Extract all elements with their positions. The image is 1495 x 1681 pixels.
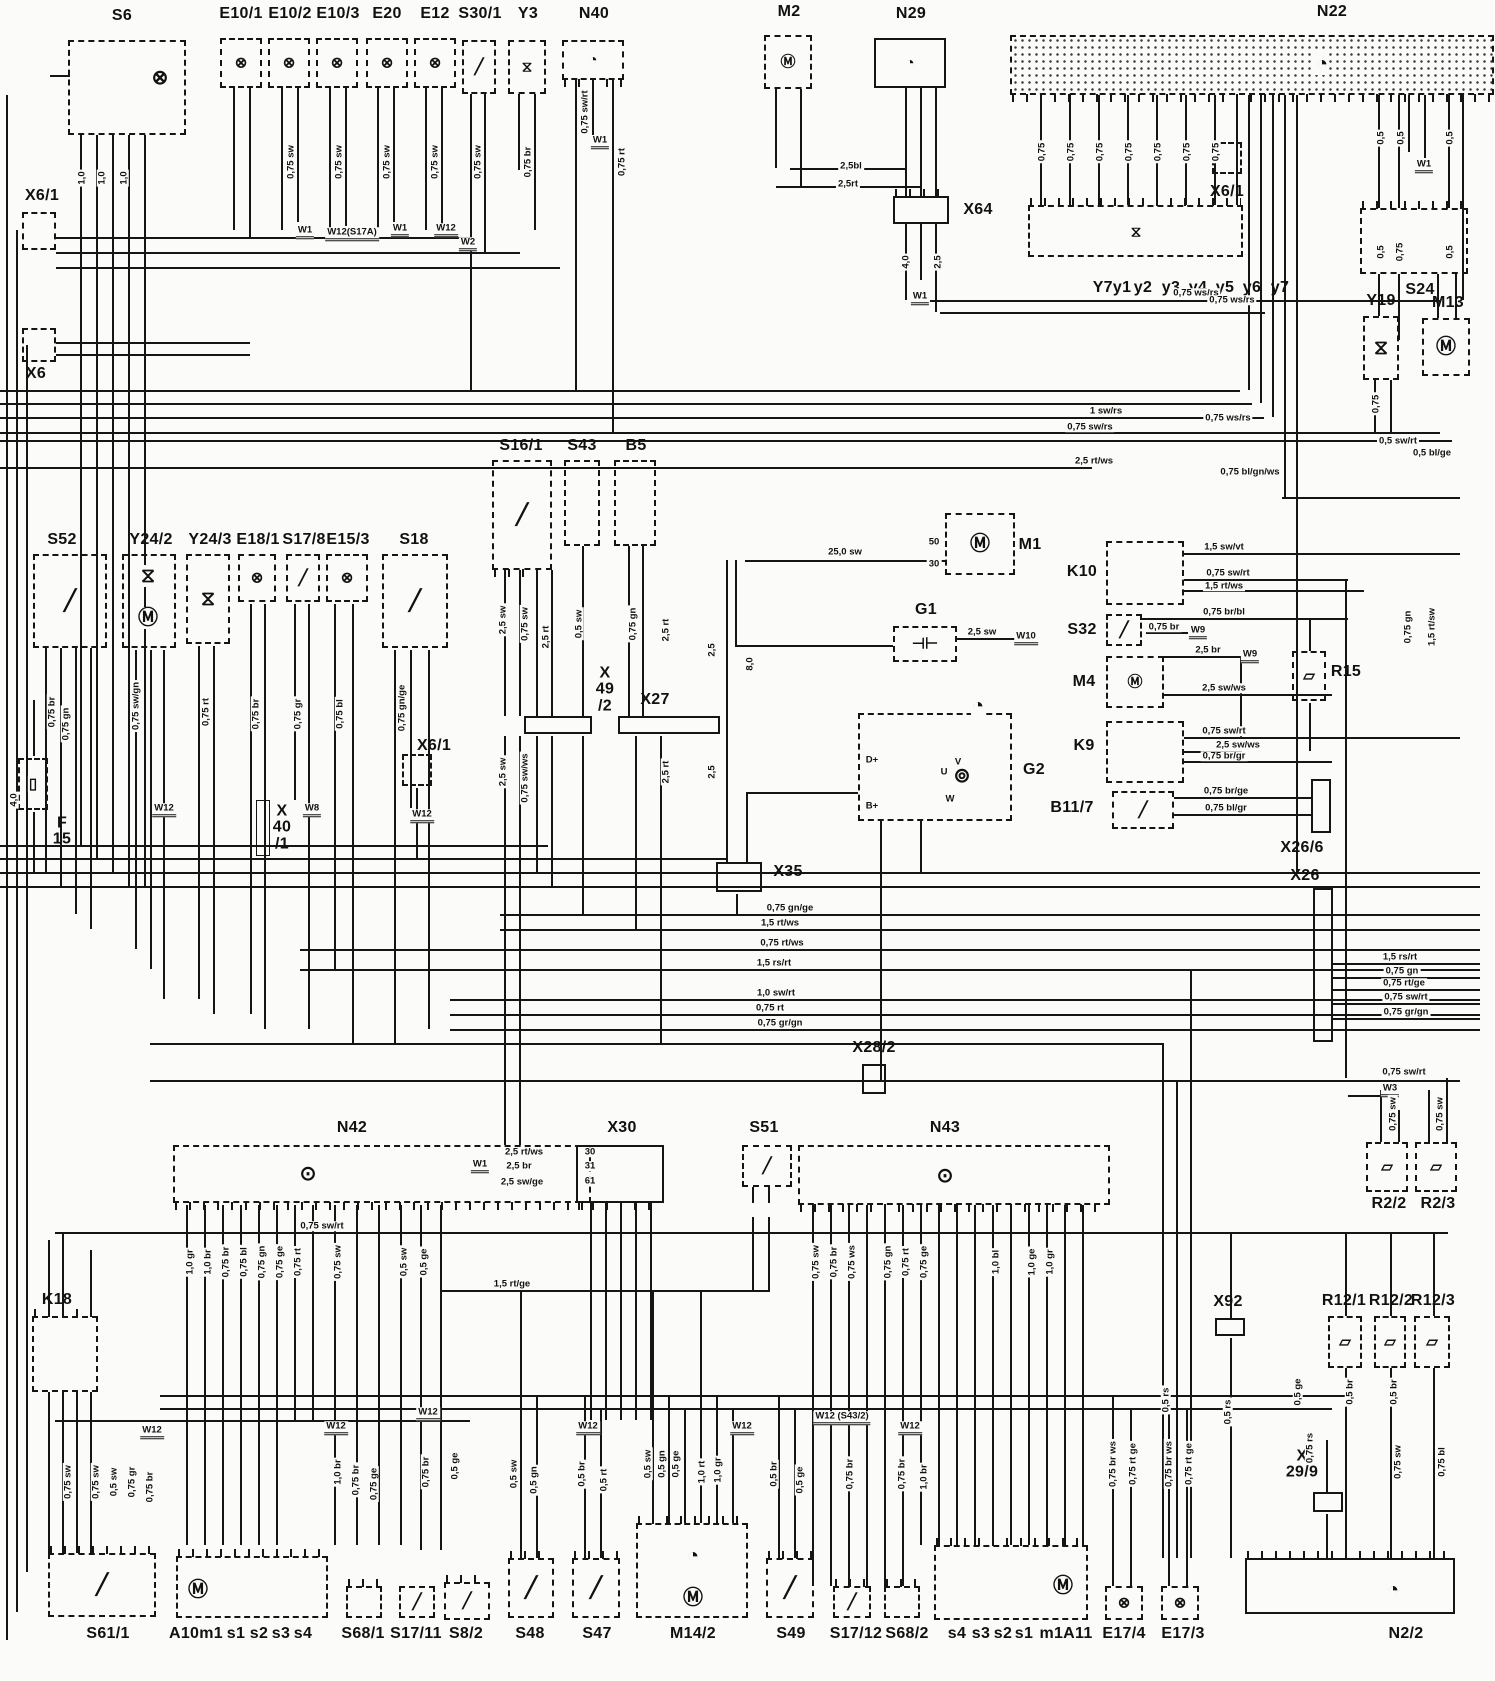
wire-vertical bbox=[520, 1290, 522, 1558]
component-e17-4-label: E17/4 bbox=[1102, 1626, 1145, 1642]
wire-label: 0,75 ge bbox=[919, 1244, 929, 1280]
wire-label: 2,5 sw bbox=[498, 604, 508, 637]
wire-horizontal bbox=[0, 432, 1440, 434]
ground-label: W12 bbox=[434, 223, 458, 237]
component-x28-2 bbox=[862, 1064, 886, 1094]
transistor-icon: ⊙ bbox=[299, 1163, 318, 1185]
wire-horizontal bbox=[56, 342, 250, 344]
wire-vertical bbox=[1296, 95, 1298, 872]
component-x29-9 bbox=[1313, 1492, 1343, 1512]
wire-label: 0,75 rs bbox=[1305, 1431, 1315, 1465]
wire-vertical bbox=[441, 88, 443, 226]
wire-vertical bbox=[1378, 95, 1380, 208]
sub-label: s2 bbox=[250, 1626, 268, 1642]
wire-label: 0,75 bl bbox=[335, 697, 345, 731]
sub-label: Y7y1 bbox=[1093, 280, 1132, 296]
pump-icon: ◔ bbox=[904, 55, 915, 72]
component-x64 bbox=[893, 196, 949, 224]
wire-label: 0,75 bl/gr bbox=[1203, 803, 1249, 813]
wire-vertical bbox=[233, 88, 235, 230]
wire-label: 0,75 bbox=[1182, 141, 1192, 164]
component-y24-2-label: Y24/2 bbox=[129, 532, 172, 548]
sub-label: s2 bbox=[994, 1626, 1012, 1642]
wire-vertical bbox=[294, 1205, 296, 1420]
wire-label: 0,75 br bbox=[897, 1457, 907, 1492]
component-x6-1-l bbox=[22, 212, 56, 250]
lamp-icon: ⊗ bbox=[1173, 1595, 1188, 1612]
wire-label: 0,75 bbox=[1211, 141, 1221, 164]
lamp-icon: ⊗ bbox=[340, 570, 355, 587]
wire-label: 1,0 bl bbox=[991, 1248, 1001, 1276]
wire-vertical bbox=[700, 1290, 702, 1523]
ground-label: W12 (S43/2) bbox=[813, 1411, 870, 1425]
wire-label: 0,75 sw/rs bbox=[1065, 422, 1114, 432]
wire-label: 2,5bl bbox=[838, 161, 864, 171]
component-s17-11-label: S17/11 bbox=[390, 1626, 442, 1642]
wire-vertical bbox=[534, 94, 536, 230]
wire-vertical bbox=[736, 894, 738, 914]
wire-horizontal bbox=[300, 969, 1480, 971]
wire-label: 31 bbox=[583, 1161, 598, 1171]
switch-icon: ╱ bbox=[411, 1594, 422, 1611]
wire-label: 0,75 rt bbox=[201, 696, 211, 728]
wire-vertical bbox=[752, 1187, 754, 1203]
wire-label: 2,5 bbox=[707, 763, 717, 780]
component-x6-label: X6 bbox=[26, 366, 46, 382]
wire-label: 0,5 bbox=[1396, 129, 1406, 146]
wire-label: 1,0 bbox=[119, 169, 129, 186]
ground-label: W1 bbox=[1415, 159, 1433, 173]
wire-label: 0,75 gr bbox=[293, 697, 303, 732]
wire-horizontal bbox=[1333, 1018, 1480, 1020]
ground-label: W1 bbox=[911, 291, 929, 305]
wire-label: W bbox=[944, 794, 957, 804]
wire-label: 2,5 rt bbox=[541, 624, 551, 651]
lamp-icon: ⊗ bbox=[234, 55, 249, 72]
component-k9 bbox=[1106, 721, 1184, 783]
wire-vertical bbox=[1398, 1110, 1400, 1142]
wire-horizontal bbox=[1146, 632, 1188, 634]
wire-vertical bbox=[752, 1217, 754, 1290]
wire-vertical bbox=[905, 88, 907, 196]
wire-label: 2,5 sw/ge bbox=[499, 1177, 545, 1187]
wire-vertical bbox=[163, 650, 165, 999]
wire-label: U bbox=[939, 767, 950, 777]
wire-label: 0,75 br bbox=[221, 1245, 231, 1280]
component-r12-2-label: R12/2 bbox=[1369, 1293, 1413, 1309]
sub-label: m1A11 bbox=[1039, 1626, 1092, 1642]
ground-label: W12 bbox=[152, 803, 176, 817]
wire-vertical bbox=[1186, 1408, 1188, 1586]
wire-label: 0,5 bbox=[1376, 129, 1386, 146]
component-e10-3-label: E10/3 bbox=[316, 6, 359, 22]
wire-vertical bbox=[96, 135, 98, 858]
ground-label: W1 bbox=[391, 223, 409, 237]
wire-horizontal bbox=[745, 560, 945, 562]
wire-label: 0,5 ge bbox=[795, 1465, 805, 1496]
wire-label: 0,75 gn bbox=[883, 1244, 893, 1281]
wire-label: 0,75 rt ge bbox=[1128, 1441, 1138, 1487]
wire-horizontal bbox=[1184, 761, 1332, 763]
wire-label: 0,75 ws/rs bbox=[1207, 295, 1256, 305]
ground-label: W1 bbox=[296, 225, 314, 239]
wire-label: 1,5 rt/sw bbox=[1427, 606, 1437, 648]
wire-label: 0,5 bbox=[1376, 243, 1386, 260]
wire-label: 0,5 br bbox=[1389, 1377, 1399, 1406]
wire-vertical bbox=[684, 1408, 686, 1523]
wire-label: 0,75 br ws bbox=[1108, 1439, 1118, 1489]
component-r2-2-label: R2/2 bbox=[1372, 1196, 1407, 1212]
component-x6-1-l-label: X6/1 bbox=[25, 188, 59, 204]
wire-label: 1,0 br bbox=[919, 1462, 929, 1491]
wire-label: 0,75 ws bbox=[847, 1243, 857, 1281]
wire-horizontal bbox=[1174, 814, 1311, 816]
switch-icon: ╱ bbox=[408, 590, 422, 612]
switch-icon: ╱ bbox=[846, 1594, 857, 1611]
wire-label: 0,75 ge bbox=[369, 1466, 379, 1502]
wire-vertical bbox=[1424, 95, 1426, 158]
ground-label: W12 bbox=[576, 1421, 600, 1435]
wire-label: 8,0 bbox=[745, 655, 755, 672]
valve-icon: ⧖ bbox=[140, 565, 156, 587]
wire-vertical bbox=[582, 736, 584, 914]
component-y19-label: Y19 bbox=[1366, 293, 1395, 309]
ground-label: W12 bbox=[730, 1421, 754, 1435]
wire-vertical bbox=[440, 1205, 442, 1550]
wire-vertical bbox=[1010, 1205, 1012, 1545]
component-x6-1-m bbox=[402, 754, 432, 786]
alternator-icon: ⊚ bbox=[953, 765, 972, 787]
wire-label: 0,5 sw bbox=[509, 1458, 519, 1491]
wire-label: 0,75 sw bbox=[91, 1463, 101, 1501]
wire-vertical bbox=[935, 88, 937, 196]
wire-label: 0,5 ge bbox=[419, 1247, 429, 1278]
wire-label: 0,75 bbox=[1395, 241, 1405, 264]
resistor-icon: ▱ bbox=[1302, 668, 1316, 685]
wire-horizontal bbox=[1282, 497, 1460, 499]
wire-label: 0,75 br bbox=[1147, 622, 1182, 632]
sub-label: A10m1 bbox=[169, 1626, 223, 1642]
wire-label: 0,75 rt bbox=[754, 1003, 786, 1013]
wire-label: 0,75 sw/rt bbox=[1204, 568, 1251, 578]
wire-horizontal bbox=[1348, 1095, 1380, 1097]
component-k18-label: K18 bbox=[42, 1292, 72, 1308]
wire-vertical bbox=[90, 648, 92, 929]
wire-horizontal bbox=[957, 638, 1018, 640]
component-s61-1-label: S61/1 bbox=[86, 1626, 129, 1642]
wire-label: 2,5 bbox=[933, 253, 943, 270]
wire-vertical bbox=[920, 224, 922, 280]
wire-label: 0,75 gn bbox=[61, 706, 71, 743]
switch-icon: ╱ bbox=[515, 504, 529, 526]
wire-vertical bbox=[249, 88, 251, 237]
wire-vertical bbox=[60, 648, 62, 886]
wire-label: 0,75 bl/gn/ws bbox=[1218, 467, 1281, 477]
component-g2-label: G2 bbox=[1023, 762, 1045, 778]
wire-vertical bbox=[519, 570, 521, 716]
wire-label: 1,5 rt/ge bbox=[492, 1279, 532, 1289]
wire-horizontal bbox=[940, 312, 1265, 314]
wire-vertical bbox=[144, 135, 146, 886]
wire-label: 0,75 sw bbox=[334, 143, 344, 181]
component-n2-2 bbox=[1245, 1558, 1455, 1614]
switch-icon: ╱ bbox=[63, 590, 77, 612]
wire-vertical bbox=[866, 1205, 868, 1586]
wire-label: 25,0 sw bbox=[826, 547, 864, 557]
resistor-icon: ▱ bbox=[1338, 1334, 1352, 1351]
wire-vertical bbox=[1082, 1205, 1084, 1545]
wire-horizontal bbox=[0, 403, 1252, 405]
wire-label: 0,75 gn/ge bbox=[765, 903, 815, 913]
wire-label: 0,75 br/bl bbox=[1201, 607, 1247, 617]
wire-vertical bbox=[90, 1250, 92, 1316]
wire-label: 0,75 br/gr bbox=[1201, 751, 1248, 761]
component-x6-1-m-label: X6/1 bbox=[417, 738, 451, 754]
lamp-icon: ⊗ bbox=[250, 570, 265, 587]
component-e18-1-label: E18/1 bbox=[236, 532, 279, 548]
wire-vertical bbox=[26, 345, 28, 1572]
ground-label: W8 bbox=[303, 803, 321, 817]
component-n2-2-label: N2/2 bbox=[1389, 1626, 1424, 1642]
ground-label: W12 bbox=[140, 1425, 164, 1439]
wire-label: 0,75 sw/rt bbox=[1380, 1067, 1427, 1077]
resistor-icon: ▱ bbox=[1380, 1159, 1394, 1176]
component-m4-label: M4 bbox=[1073, 674, 1096, 690]
switch-icon: ╱ bbox=[461, 1593, 472, 1610]
wire-vertical bbox=[920, 821, 922, 872]
ground-label: W12(S17A) bbox=[325, 227, 379, 241]
wire-vertical bbox=[620, 1203, 622, 1420]
wire-label: 61 bbox=[583, 1176, 598, 1186]
wire-vertical bbox=[33, 812, 35, 872]
wire-vertical bbox=[80, 135, 82, 845]
wire-label: 0,75 gn bbox=[257, 1244, 267, 1281]
wire-label: 0,75 bbox=[1037, 141, 1047, 164]
component-b11-7-label: B11/7 bbox=[1050, 800, 1093, 816]
motor-icon: Ⓜ bbox=[187, 1579, 209, 1601]
wire-label: 1,5 rs/rt bbox=[755, 958, 793, 968]
wire-label: 0,75 sw bbox=[1388, 1095, 1398, 1133]
wire-label: B+ bbox=[864, 801, 880, 811]
resistor-icon: ▱ bbox=[1429, 1159, 1443, 1176]
wire-label: 1,5 rs/rt bbox=[1381, 952, 1419, 962]
motor-icon: Ⓜ bbox=[1126, 674, 1143, 691]
motor-icon: Ⓜ bbox=[137, 607, 159, 629]
wire-vertical bbox=[726, 560, 728, 862]
component-e20-label: E20 bbox=[372, 6, 401, 22]
wire-label: 0,75 br bbox=[47, 695, 57, 730]
wire-label: 2,5 br bbox=[1193, 645, 1222, 655]
wire-label: 1 sw/rs bbox=[1088, 406, 1124, 416]
sub-label: s4 bbox=[948, 1626, 966, 1642]
wire-label: 0,75 sw bbox=[811, 1243, 821, 1281]
wire-label: 0,75 bbox=[1095, 141, 1105, 164]
wire-label: 0,75 ge bbox=[275, 1244, 285, 1280]
wire-vertical bbox=[329, 88, 331, 230]
component-r12-1-label: R12/1 bbox=[1322, 1293, 1366, 1309]
wire-vertical bbox=[974, 1205, 976, 1545]
switch-icon: ╱ bbox=[761, 1158, 772, 1175]
component-x26-6-label: X26/6 bbox=[1280, 840, 1323, 856]
valve-icon: ⧖ bbox=[1130, 224, 1143, 241]
transistor-icon: ⊙ bbox=[936, 1165, 955, 1187]
wire-label: 0,5 rs bbox=[1223, 1398, 1233, 1427]
wire-vertical bbox=[1408, 95, 1410, 152]
lamp-icon: ⊗ bbox=[282, 55, 297, 72]
wire-label: 0,75 sw bbox=[382, 143, 392, 181]
wire-vertical bbox=[1260, 95, 1262, 403]
wire-horizontal bbox=[56, 252, 520, 254]
switch-icon: ╱ bbox=[473, 59, 484, 76]
switch-icon: ╱ bbox=[524, 1577, 538, 1599]
wire-label: 0,75 bbox=[1066, 141, 1076, 164]
wire-label: 0,5 gn bbox=[529, 1464, 539, 1495]
component-e17-3-label: E17/3 bbox=[1161, 1626, 1204, 1642]
wire-label: 1,0 ge bbox=[1027, 1247, 1037, 1278]
wire-vertical bbox=[393, 88, 395, 222]
pump-icon: ◔ bbox=[971, 695, 985, 717]
switch-icon: ╱ bbox=[1118, 622, 1129, 639]
valve-icon: ⧖ bbox=[1373, 337, 1389, 359]
wire-label: 0,75 rt/ws bbox=[758, 938, 805, 948]
component-s43 bbox=[564, 460, 600, 546]
wire-label: 0,5 sw bbox=[574, 608, 584, 641]
component-s47-label: S47 bbox=[582, 1626, 611, 1642]
wire-vertical bbox=[504, 570, 506, 716]
component-s24 bbox=[1360, 208, 1468, 274]
component-x28-2-label: X28/2 bbox=[852, 1040, 895, 1056]
wire-vertical bbox=[605, 1203, 607, 1420]
ground-label: W12 bbox=[898, 1421, 922, 1435]
wire-label: 0,75 sw/rt bbox=[298, 1221, 345, 1231]
wire-label: 0,75 br bbox=[421, 1455, 431, 1490]
wire-horizontal bbox=[1333, 1003, 1480, 1005]
component-s18-label: S18 bbox=[399, 532, 428, 548]
wire-vertical bbox=[1446, 1078, 1448, 1142]
wire-label: 0,75 bbox=[1371, 393, 1381, 416]
wire-vertical bbox=[484, 94, 486, 252]
wire-label: 0,75 bbox=[1153, 141, 1163, 164]
wire-label: 0,75 gn bbox=[628, 606, 638, 643]
component-x27-label: X27 bbox=[640, 692, 669, 708]
component-n40-label: N40 bbox=[579, 6, 609, 22]
wire-horizontal bbox=[150, 1043, 1162, 1045]
component-y3-label: Y3 bbox=[518, 6, 538, 22]
component-k18 bbox=[32, 1316, 98, 1392]
switch-icon: ╱ bbox=[783, 1577, 797, 1599]
wire-label: 30 bbox=[927, 559, 942, 569]
component-s49-label: S49 bbox=[776, 1626, 805, 1642]
motor-icon: Ⓜ bbox=[682, 1587, 704, 1609]
ground-label: W1 bbox=[591, 135, 609, 149]
wire-label: 0,5 bl/ge bbox=[1411, 448, 1453, 458]
lamp-icon: ⊗ bbox=[428, 55, 443, 72]
valve-icon: ⧖ bbox=[521, 59, 534, 76]
component-s17-8-label: S17/8 bbox=[282, 532, 325, 548]
ground-label: W9 bbox=[1189, 625, 1207, 639]
wire-vertical bbox=[920, 88, 922, 196]
wire-vertical bbox=[1176, 1080, 1178, 1558]
wire-vertical bbox=[768, 1217, 770, 1290]
wire-label: 0,75 rt bbox=[617, 146, 627, 178]
component-b5 bbox=[614, 460, 656, 546]
wire-label: 2,5 sw bbox=[966, 627, 999, 637]
wire-label: 0,5 sw bbox=[109, 1466, 119, 1499]
wire-vertical bbox=[297, 88, 299, 222]
wire-vertical bbox=[1345, 579, 1347, 1078]
ground-label: W12 bbox=[324, 1421, 348, 1435]
motor-icon: Ⓜ bbox=[1435, 336, 1457, 358]
lamp-icon: ⊗ bbox=[380, 55, 395, 72]
wire-label: 1,0 br bbox=[333, 1457, 343, 1486]
wire-horizontal bbox=[0, 417, 1264, 419]
wire-label: 0,5 gn bbox=[657, 1448, 667, 1479]
wire-vertical bbox=[956, 1205, 958, 1545]
wire-vertical bbox=[128, 135, 130, 886]
wire-vertical bbox=[612, 80, 614, 432]
battery-icon: ⊣⊢ bbox=[911, 636, 939, 653]
wire-label: 2,5 sw bbox=[498, 756, 508, 789]
wire-label: 4,0 bbox=[9, 791, 19, 808]
wire-vertical bbox=[1064, 1205, 1066, 1545]
component-g2 bbox=[858, 713, 1012, 821]
component-s68-2-label: S68/2 bbox=[885, 1626, 928, 1642]
wire-vertical bbox=[518, 94, 520, 170]
component-k10-label: K10 bbox=[1067, 564, 1097, 580]
wire-vertical bbox=[575, 80, 577, 390]
wire-label: 0,5 ge bbox=[671, 1449, 681, 1480]
wire-label: 2,5 sw/ws bbox=[1214, 740, 1262, 750]
wire-vertical bbox=[938, 1205, 940, 1545]
component-x26-label: X26 bbox=[1290, 868, 1319, 884]
wire-label: 0,75 br bbox=[523, 145, 533, 180]
wire-vertical bbox=[1309, 703, 1311, 751]
resistor-icon: ▱ bbox=[1383, 1334, 1397, 1351]
wire-horizontal bbox=[1164, 656, 1242, 658]
wire-vertical bbox=[1248, 95, 1250, 390]
component-m14-2-label: M14/2 bbox=[670, 1626, 716, 1642]
wire-vertical bbox=[1390, 380, 1392, 432]
component-e15-3-label: E15/3 bbox=[326, 532, 369, 548]
wire-horizontal bbox=[500, 929, 1480, 931]
fuse-icon: ▯ bbox=[28, 776, 38, 793]
wire-vertical bbox=[504, 736, 506, 1145]
wire-horizontal bbox=[56, 267, 560, 269]
wire-label: 2,5 bbox=[707, 641, 717, 658]
component-s30-1-label: S30/1 bbox=[458, 6, 501, 22]
wire-label: 1,0 gr bbox=[1045, 1247, 1055, 1276]
component-x26 bbox=[1313, 888, 1333, 1042]
wire-label: 0,5 rs bbox=[1161, 1386, 1171, 1415]
component-s16-1-label: S16/1 bbox=[499, 438, 542, 454]
component-x64-label: X64 bbox=[963, 202, 992, 218]
wire-label: 0,75 br bbox=[351, 1463, 361, 1498]
wire-label: 1,0 gr bbox=[713, 1455, 723, 1484]
lamp-icon: ⊗ bbox=[151, 67, 170, 89]
sub-label: s1 bbox=[1015, 1626, 1033, 1642]
ground-label: W1 bbox=[471, 1159, 489, 1173]
wire-horizontal bbox=[1184, 553, 1460, 555]
component-x30-label: X30 bbox=[607, 1120, 636, 1136]
wire-label: 0,75 br bbox=[829, 1245, 839, 1280]
wire-vertical bbox=[1168, 1395, 1170, 1586]
wire-label: 0,75 sw bbox=[520, 605, 530, 643]
component-s43-label: S43 bbox=[567, 438, 596, 454]
component-s68-1-label: S68/1 bbox=[341, 1626, 384, 1642]
component-e10-2-label: E10/2 bbox=[268, 6, 311, 22]
wire-label: 0,75 rt/ge bbox=[1381, 978, 1427, 988]
component-m1-label: M1 bbox=[1019, 537, 1042, 553]
